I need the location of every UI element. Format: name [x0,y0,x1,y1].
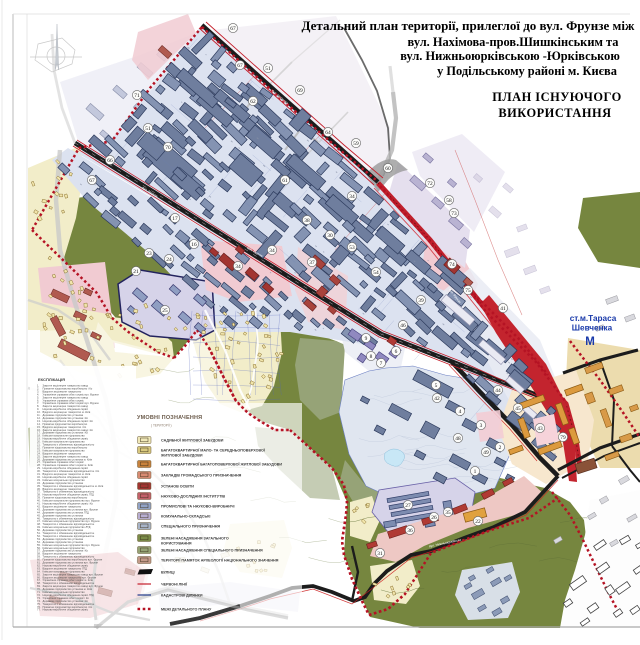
svg-text:60: 60 [385,166,391,172]
svg-text:3: 3 [480,423,483,429]
svg-text:СПЕЦІАЛЬНОГО ПРИЗНАЧЕННЯ: СПЕЦІАЛЬНОГО ПРИЗНАЧЕННЯ [161,525,220,529]
svg-text:ЗАКЛАДІВ ГРОМАДСЬКОГО ПРИЗНАЧЕ: ЗАКЛАДІВ ГРОМАДСЬКОГО ПРИЗНАЧЕННЯ [161,474,242,478]
svg-text:БАГАТОКВАРТИРНОЇ МАЛО- ТА СЕРЕ: БАГАТОКВАРТИРНОЇ МАЛО- ТА СЕРЕДНЬОПОВЕРХ… [161,449,266,453]
svg-text:ЗЕЛЕНІ НАСАДЖЕННЯ СПЕЦІАЛЬНОГО: ЗЕЛЕНІ НАСАДЖЕННЯ СПЕЦІАЛЬНОГО ПРИЗНАЧЕН… [161,549,263,553]
svg-text:70: 70 [165,145,171,151]
svg-text:КОРИСТУВАННЯ: КОРИСТУВАННЯ [161,541,192,545]
svg-text:БАГАТОКВАРТИРНОЇ БАГАТОПОВЕРХО: БАГАТОКВАРТИРНОЇ БАГАТОПОВЕРХОВОЇ ЖИТЛОВ… [161,463,282,467]
svg-text:46: 46 [400,323,406,329]
svg-text:45: 45 [515,406,521,412]
svg-text:вул. Нижньоюрківською -Юрківсь: вул. Нижньоюрківською -Юрківською [400,49,620,63]
svg-text:73: 73 [451,211,457,217]
svg-text:44: 44 [495,388,501,394]
svg-text:ВИКОРИСТАННЯ: ВИКОРИСТАННЯ [498,106,611,120]
svg-text:ст.м.Тараса: ст.м.Тараса [570,314,617,323]
svg-text:ПРОМИСЛОВІ ТА НАУКОВО-ВИРОБНИЧ: ПРОМИСЛОВІ ТА НАУКОВО-ВИРОБНИЧІ [161,505,235,509]
svg-text:38: 38 [304,218,310,224]
svg-text:39: 39 [418,298,424,304]
svg-text:ЕКСПЛІКАЦІЯ: ЕКСПЛІКАЦІЯ [38,377,65,382]
svg-text:УМОВНІ ПОЗНАЧЕННЯ: УМОВНІ ПОЗНАЧЕННЯ [137,415,202,421]
svg-text:34: 34 [349,194,355,200]
svg-text:72: 72 [427,181,433,187]
svg-text:54: 54 [373,270,379,276]
svg-text:59: 59 [353,141,359,147]
svg-text:( ТЕРИТОРІЇ ): ( ТЕРИТОРІЇ ) [151,424,172,428]
svg-text:53: 53 [349,245,355,251]
svg-text:64: 64 [325,130,331,136]
svg-text:51: 51 [265,66,271,72]
svg-text:Детальний план території, прил: Детальний план території, прилеглої до в… [302,18,635,33]
svg-text:74: 74 [449,262,455,268]
svg-text:67: 67 [237,63,243,69]
svg-text:КОМУНАЛЬНО-СКЛАДСЬКІ: КОМУНАЛЬНО-СКЛАДСЬКІ [161,515,210,519]
svg-text:САДИБНОЇ ЖИТЛОВОЇ ЗАБУДОВИ: САДИБНОЇ ЖИТЛОВОЇ ЗАБУДОВИ [161,439,224,443]
svg-text:7: 7 [380,361,383,367]
svg-text:ЗЕЛЕНІ НАСАДЖЕННЯ ЗАГАЛЬНОГО: ЗЕЛЕНІ НАСАДЖЕННЯ ЗАГАЛЬНОГО [161,537,229,541]
svg-text:ПЛАН ІСНУЮЧОГО: ПЛАН ІСНУЮЧОГО [492,90,621,104]
svg-text:79: 79 [560,435,566,441]
svg-text:49: 49 [483,450,489,456]
svg-text:8: 8 [370,354,373,360]
svg-text:67: 67 [89,178,95,184]
svg-text:ЧЕРВОНІ ЛІНІЇ: ЧЕРВОНІ ЛІНІЇ [161,583,188,587]
svg-text:26: 26 [431,515,437,521]
svg-text:35: 35 [445,510,451,516]
svg-text:48: 48 [455,436,461,442]
svg-text:43: 43 [537,426,543,432]
svg-text:31: 31 [377,551,383,557]
svg-text:КАДАСТРОВІ ДІЛЯНКИ: КАДАСТРОВІ ДІЛЯНКИ [161,594,203,598]
svg-text:58: 58 [446,198,452,204]
svg-text:36: 36 [407,528,413,534]
svg-text:Шевченка: Шевченка [572,324,613,333]
svg-text:34: 34 [269,248,275,254]
svg-text:9: 9 [365,336,368,342]
svg-text:34: 34 [235,264,241,270]
svg-text:22: 22 [475,519,481,525]
svg-text:у Подільському районі м. Києва: у Подільському районі м. Києва [437,64,617,78]
svg-text:4: 4 [459,409,462,415]
svg-text:Науково-виробниче обєднання се: Науково-виробниче обєднання сервіс [43,608,89,612]
svg-text:6: 6 [395,349,398,355]
svg-text:24: 24 [166,257,172,263]
svg-text:2: 2 [499,445,502,451]
svg-text:62: 62 [250,99,256,105]
svg-text:17: 17 [172,216,178,222]
svg-text:НАУКОВО-ДОСЛІДНИХ ІНСТИТУТІВ: НАУКОВО-ДОСЛІДНИХ ІНСТИТУТІВ [161,495,225,499]
svg-text:21: 21 [133,269,139,275]
svg-text:УСТАНОВ ОСВІТИ: УСТАНОВ ОСВІТИ [161,485,194,489]
svg-text:ЖИТЛОВОЇ ЗАБУДОВИ: ЖИТЛОВОЇ ЗАБУДОВИ [160,453,203,457]
svg-text:30: 30 [327,233,333,239]
svg-text:37: 37 [309,260,315,266]
svg-text:27: 27 [405,503,411,509]
svg-text:вул. Нахімова-пров.Шишкінським: вул. Нахімова-пров.Шишкінським та [408,35,619,49]
svg-text:66: 66 [107,158,113,164]
svg-text:61: 61 [282,178,288,184]
svg-text:23: 23 [146,251,152,257]
svg-text:42: 42 [434,396,440,402]
svg-text:М: М [585,336,595,348]
svg-text:1: 1 [474,469,477,475]
svg-text:МЕЖІ ДЕТАЛЬНОГО ПЛАНУ: МЕЖІ ДЕТАЛЬНОГО ПЛАНУ [161,608,212,612]
svg-text:ВУЛИЦІ: ВУЛИЦІ [161,571,175,575]
svg-text:69: 69 [297,88,303,94]
svg-text:51: 51 [145,126,151,132]
svg-text:77.: 77. [37,608,41,612]
svg-text:67: 67 [230,26,236,32]
svg-text:71: 71 [134,93,140,99]
svg-text:16: 16 [191,242,197,248]
svg-text:75: 75 [465,288,471,294]
svg-text:41: 41 [500,306,506,312]
svg-text:ТЕРИТОРІЇ ПАМЯТОК АРХЕОЛОГІЇ Н: ТЕРИТОРІЇ ПАМЯТОК АРХЕОЛОГІЇ НАЦІОНАЛЬНО… [161,559,279,563]
svg-text:5: 5 [435,383,438,389]
svg-text:25: 25 [162,308,168,314]
